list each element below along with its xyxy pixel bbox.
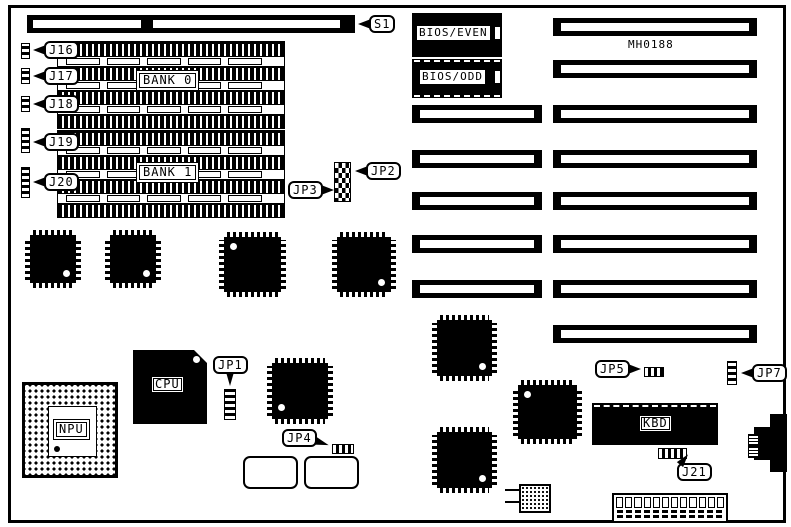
isa-slot-ext bbox=[412, 105, 542, 123]
callout-j18-label: J18 bbox=[49, 97, 74, 111]
callout-jp4: JP4 bbox=[282, 429, 317, 447]
pin1-dot bbox=[143, 270, 150, 277]
bios-even-label: BIOS/EVEN bbox=[417, 26, 490, 40]
pin1-dot bbox=[63, 270, 70, 277]
callout-j21-label: J21 bbox=[682, 465, 707, 479]
callout-j16-label: J16 bbox=[49, 43, 74, 57]
arrow-icon bbox=[355, 166, 368, 176]
isa-slot-ext bbox=[412, 150, 542, 168]
kbd-label: KBD bbox=[640, 416, 671, 431]
power-connector bbox=[612, 493, 728, 523]
bios-even-chip: BIOS/EVEN bbox=[412, 13, 502, 57]
cpu-chip: CPU bbox=[133, 350, 207, 424]
isa-slot-ext bbox=[412, 192, 542, 210]
motherboard-diagram: { "colors": {"ink": "#000000", "paper": … bbox=[0, 0, 791, 527]
qfp-chip bbox=[219, 232, 286, 297]
arrow-icon bbox=[321, 185, 334, 195]
arrow-icon bbox=[226, 372, 234, 386]
pin1-dot bbox=[278, 404, 285, 411]
npu-cavity: NPU bbox=[48, 406, 97, 457]
isa-slot bbox=[553, 235, 757, 253]
pin1-dot bbox=[230, 243, 237, 250]
simm-module bbox=[58, 90, 284, 105]
arrow-icon bbox=[358, 19, 371, 29]
callout-jp3: JP3 bbox=[288, 181, 323, 199]
bank1-label: BANK 1 bbox=[139, 165, 196, 180]
simm-module bbox=[58, 42, 284, 57]
power-dash-row bbox=[617, 510, 723, 513]
power-dash-row bbox=[617, 515, 723, 518]
npu-socket: NPU bbox=[22, 382, 118, 478]
cpu-label: CPU bbox=[152, 377, 183, 392]
callout-jp2: JP2 bbox=[366, 162, 401, 180]
qfp-chip bbox=[432, 315, 497, 381]
callout-j20-label: J20 bbox=[49, 175, 74, 189]
s1-window-2 bbox=[153, 20, 340, 28]
isa-slot bbox=[553, 18, 757, 36]
callout-j20: J20 bbox=[44, 173, 79, 191]
callout-jp7-label: JP7 bbox=[757, 366, 782, 380]
simm-module bbox=[58, 114, 284, 129]
simm-socket bbox=[58, 57, 284, 66]
callout-s1-label: S1 bbox=[374, 17, 390, 31]
simm-socket bbox=[58, 194, 284, 203]
oscillator-footprint bbox=[243, 456, 298, 489]
callout-jp4-label: JP4 bbox=[287, 431, 312, 445]
callout-j19: J19 bbox=[44, 133, 79, 151]
socket-dash bbox=[414, 60, 500, 62]
arrow-icon bbox=[741, 368, 754, 378]
callout-j18: J18 bbox=[44, 95, 79, 113]
pin1-dot bbox=[524, 391, 531, 398]
bank0-label: BANK 0 bbox=[139, 73, 196, 88]
simm-module bbox=[58, 131, 284, 146]
jumper-jp5 bbox=[644, 367, 664, 377]
edge-connector-j20 bbox=[21, 167, 30, 198]
callout-s1: S1 bbox=[369, 15, 395, 33]
jumper-jp1 bbox=[224, 389, 236, 420]
callout-j21: J21 bbox=[677, 463, 712, 481]
bios-odd-chip: BIOS/ODD bbox=[412, 59, 502, 98]
edge-connector-j17 bbox=[21, 68, 30, 84]
npu-label: NPU bbox=[56, 422, 87, 437]
callout-jp5-label: JP5 bbox=[600, 362, 625, 376]
pin1-dot bbox=[54, 446, 60, 452]
socket-dash bbox=[414, 95, 500, 97]
callout-j17-label: J17 bbox=[49, 69, 74, 83]
jumper-jp7 bbox=[727, 361, 737, 385]
callout-jp2-label: JP2 bbox=[371, 164, 396, 178]
chip-notch bbox=[495, 27, 500, 39]
qfp-chip bbox=[105, 230, 161, 288]
jumper-block-jp2-jp3 bbox=[334, 162, 351, 202]
edge-connector-j16 bbox=[21, 43, 30, 59]
pin1-dot bbox=[193, 356, 200, 363]
isa-slot-ext bbox=[412, 235, 542, 253]
isa-slot bbox=[553, 105, 757, 123]
isa-slot bbox=[553, 280, 757, 298]
qfp-chip bbox=[25, 230, 81, 288]
crystal bbox=[519, 484, 551, 513]
isa-slot bbox=[553, 192, 757, 210]
qfp-chip bbox=[267, 358, 333, 424]
arrow-icon bbox=[33, 177, 46, 187]
simm-module bbox=[58, 179, 284, 194]
isa-slot bbox=[553, 325, 757, 343]
arrow-icon bbox=[33, 45, 46, 55]
isa-slot-ext bbox=[412, 280, 542, 298]
callout-jp1: JP1 bbox=[213, 356, 248, 374]
callout-jp1-label: JP1 bbox=[218, 358, 243, 372]
arrow-icon bbox=[33, 99, 46, 109]
jumper-jp4 bbox=[332, 444, 354, 454]
s1-window-1 bbox=[33, 20, 141, 28]
qfp-chip bbox=[513, 380, 582, 444]
callout-jp7: JP7 bbox=[752, 364, 787, 382]
chip-notch bbox=[495, 71, 500, 83]
callout-jp5: JP5 bbox=[595, 360, 630, 378]
oscillator-footprint bbox=[304, 456, 359, 489]
simm-socket bbox=[58, 146, 284, 155]
arrow-icon bbox=[628, 364, 641, 374]
callout-j16: J16 bbox=[44, 41, 79, 59]
arrow-icon bbox=[33, 71, 46, 81]
bios-odd-label: BIOS/ODD bbox=[420, 70, 485, 84]
s1-switch-bar bbox=[27, 15, 355, 33]
pin1-dot bbox=[378, 279, 385, 286]
power-pins bbox=[614, 495, 726, 508]
callout-j19-label: J19 bbox=[49, 135, 74, 149]
simm-module bbox=[58, 203, 284, 218]
edge-connector-j19 bbox=[21, 128, 30, 153]
socket-dash bbox=[594, 405, 716, 407]
qfp-chip bbox=[432, 427, 497, 493]
kbd-chip: KBD bbox=[592, 403, 718, 445]
edge-connector-j18 bbox=[21, 96, 30, 112]
connector-tab bbox=[748, 446, 759, 458]
connector-tab bbox=[748, 434, 759, 446]
qfp-chip bbox=[332, 232, 396, 297]
isa-slot bbox=[553, 60, 757, 78]
callout-j17: J17 bbox=[44, 67, 79, 85]
isa-slot bbox=[553, 150, 757, 168]
arrow-icon bbox=[33, 137, 46, 147]
callout-jp3-label: JP3 bbox=[293, 183, 318, 197]
part-number: MH0188 bbox=[628, 38, 674, 51]
pin1-dot bbox=[479, 475, 486, 482]
simm-socket bbox=[58, 105, 284, 114]
pin1-dot bbox=[479, 363, 486, 370]
